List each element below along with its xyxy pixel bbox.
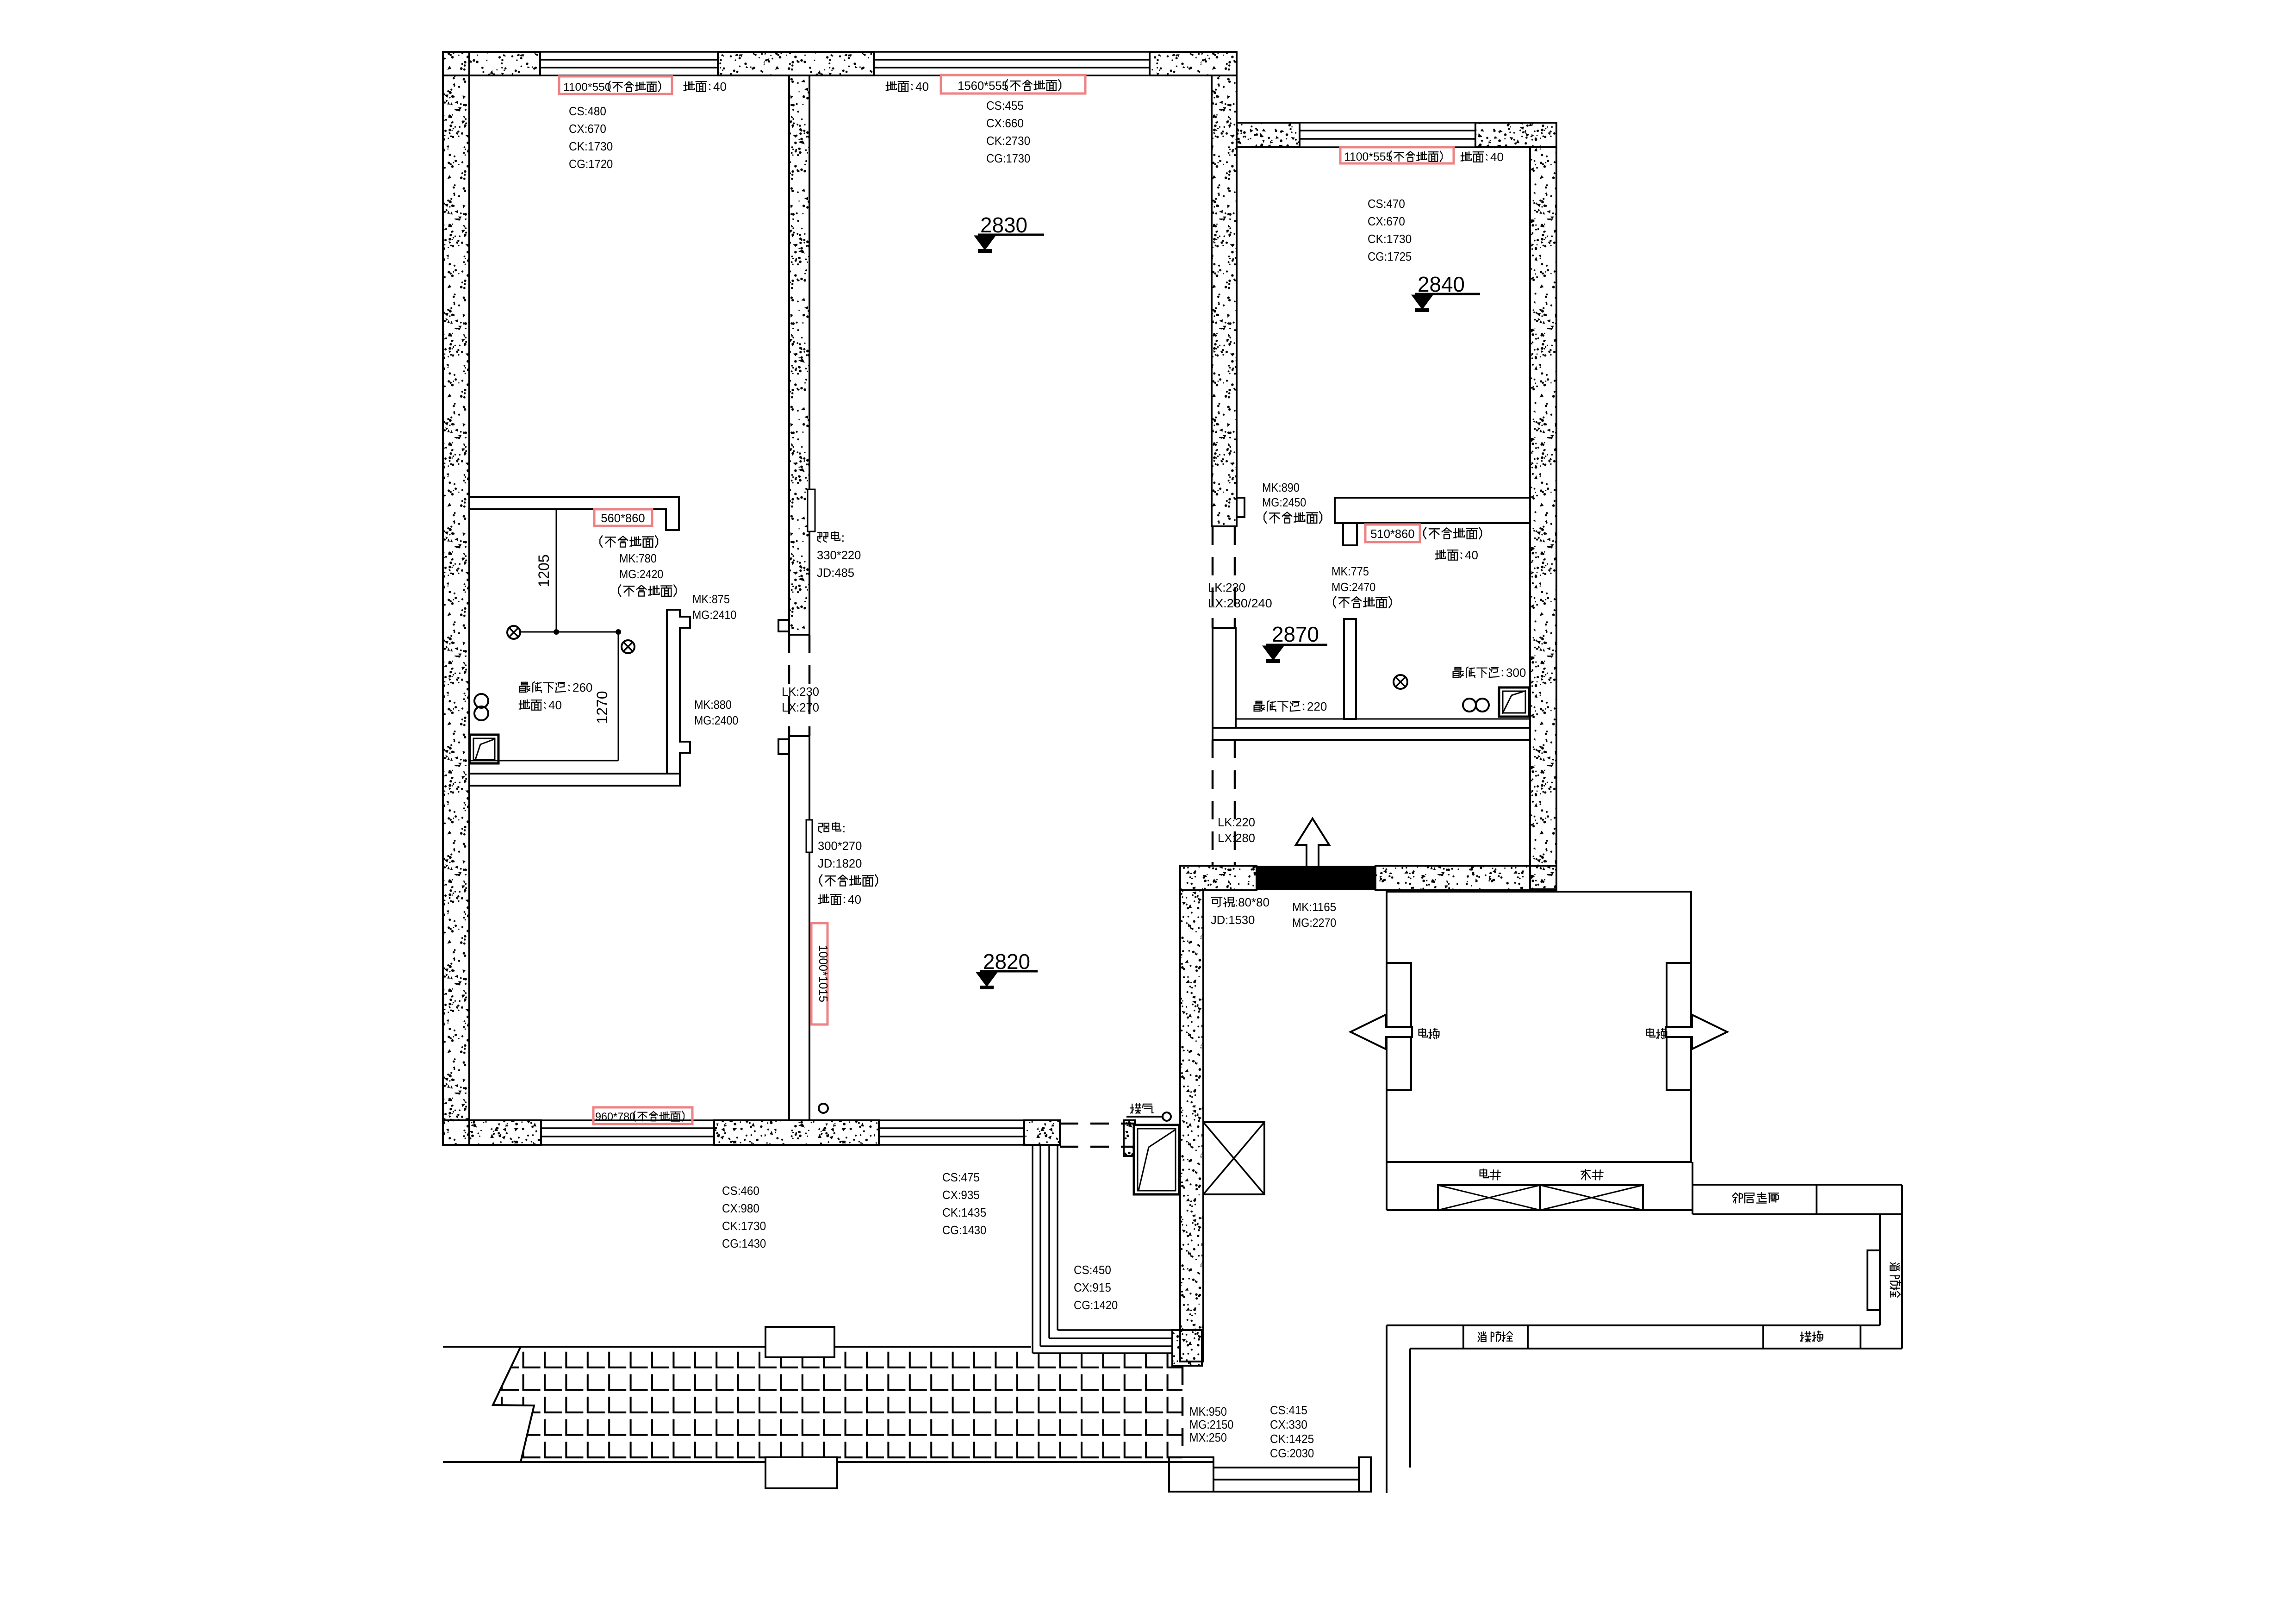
svg-text:MG:2450: MG:2450 [1262, 495, 1306, 509]
svg-text:MG:2270: MG:2270 [1292, 916, 1336, 930]
svg-text:MG:2150: MG:2150 [1189, 1418, 1233, 1431]
svg-text:1270: 1270 [594, 691, 610, 724]
svg-text:JD:1820: JD:1820 [818, 856, 862, 870]
svg-text:CK:1730: CK:1730 [722, 1219, 766, 1233]
svg-text:1560*555: 1560*555 [958, 79, 1008, 93]
svg-text:CG:1720: CG:1720 [569, 157, 613, 171]
svg-text:CX:330: CX:330 [1270, 1418, 1307, 1431]
svg-text:CS:455: CS:455 [986, 99, 1024, 112]
svg-text:MK:775: MK:775 [1332, 564, 1369, 578]
svg-text:2870: 2870 [1272, 622, 1319, 646]
svg-text:CS:480: CS:480 [569, 104, 606, 118]
svg-text:CG:1430: CG:1430 [722, 1237, 766, 1250]
svg-text:MK:780: MK:780 [619, 551, 657, 565]
svg-text:LK:230: LK:230 [782, 685, 819, 699]
svg-text:CS:470: CS:470 [1368, 197, 1405, 211]
svg-text:CS:415: CS:415 [1270, 1403, 1307, 1417]
svg-text:1205: 1205 [535, 554, 552, 587]
svg-text:LX:270: LX:270 [782, 700, 819, 714]
svg-text:330*220: 330*220 [817, 548, 861, 562]
svg-text:MG:2420: MG:2420 [619, 567, 663, 581]
svg-text:CG:1430: CG:1430 [942, 1223, 986, 1237]
svg-text:CG:1730: CG:1730 [986, 151, 1030, 165]
svg-text:1000*1015: 1000*1015 [816, 945, 830, 1002]
svg-text:MG:2400: MG:2400 [694, 713, 738, 727]
svg-text:40: 40 [713, 80, 727, 94]
svg-text:CS:475: CS:475 [942, 1170, 980, 1184]
svg-text:CX:980: CX:980 [722, 1201, 759, 1215]
svg-text:300*270: 300*270 [818, 839, 862, 853]
svg-text:300: 300 [1506, 666, 1526, 680]
svg-text:220: 220 [1307, 700, 1327, 713]
svg-text:CK:1730: CK:1730 [569, 139, 613, 153]
svg-text:MK:880: MK:880 [694, 698, 732, 712]
svg-text:CK:1435: CK:1435 [942, 1206, 986, 1219]
svg-text:CS:450: CS:450 [1074, 1263, 1111, 1277]
svg-text:CS:460: CS:460 [722, 1184, 759, 1198]
svg-text:MK:875: MK:875 [692, 592, 730, 606]
svg-text:40: 40 [1465, 548, 1478, 562]
svg-text:CX:660: CX:660 [986, 116, 1024, 130]
svg-text:MG:2410: MG:2410 [692, 608, 736, 622]
svg-text:960*780: 960*780 [595, 1111, 635, 1123]
svg-text:JD:1530: JD:1530 [1211, 913, 1255, 927]
svg-text:2820: 2820 [983, 949, 1030, 974]
svg-text:CK:1425: CK:1425 [1270, 1432, 1314, 1446]
svg-text:MK:890: MK:890 [1262, 481, 1300, 494]
svg-text:CG:1420: CG:1420 [1074, 1298, 1118, 1312]
svg-text:MX:250: MX:250 [1189, 1430, 1227, 1444]
svg-text:CX:670: CX:670 [1368, 214, 1405, 228]
svg-text:MG:2470: MG:2470 [1332, 580, 1375, 594]
svg-text:40: 40 [1490, 150, 1504, 164]
svg-text:2830: 2830 [980, 213, 1027, 237]
svg-text:CX:670: CX:670 [569, 122, 606, 136]
svg-text:CX:935: CX:935 [942, 1188, 980, 1202]
svg-text:LX:280/240: LX:280/240 [1208, 596, 1272, 610]
svg-text::80*80: :80*80 [1235, 895, 1269, 909]
svg-text:CG:2030: CG:2030 [1270, 1446, 1314, 1460]
svg-text:CG:1725: CG:1725 [1368, 250, 1412, 263]
svg-text:MK:950: MK:950 [1189, 1405, 1227, 1418]
svg-text:260: 260 [572, 681, 592, 694]
svg-text:LK:230: LK:230 [1208, 581, 1245, 594]
svg-text:2840: 2840 [1418, 272, 1465, 296]
svg-text:1100*555: 1100*555 [1344, 151, 1392, 163]
svg-text::: : [841, 531, 845, 544]
svg-text:MK:1165: MK:1165 [1292, 900, 1336, 914]
svg-text:40: 40 [915, 80, 929, 94]
svg-text:LK:220: LK:220 [1218, 815, 1255, 829]
svg-text:CK:2730: CK:2730 [986, 134, 1030, 148]
svg-text:CK:1730: CK:1730 [1368, 232, 1412, 246]
svg-text:1100*550: 1100*550 [563, 81, 611, 94]
svg-text::: : [842, 821, 846, 835]
svg-text:CX:915: CX:915 [1074, 1280, 1111, 1294]
svg-text:560*860: 560*860 [601, 511, 645, 525]
svg-text:510*860: 510*860 [1370, 527, 1414, 541]
svg-text:40: 40 [848, 893, 861, 906]
svg-text:JD:485: JD:485 [817, 566, 854, 580]
svg-text:40: 40 [548, 698, 562, 712]
svg-text:LX:280: LX:280 [1218, 831, 1255, 845]
